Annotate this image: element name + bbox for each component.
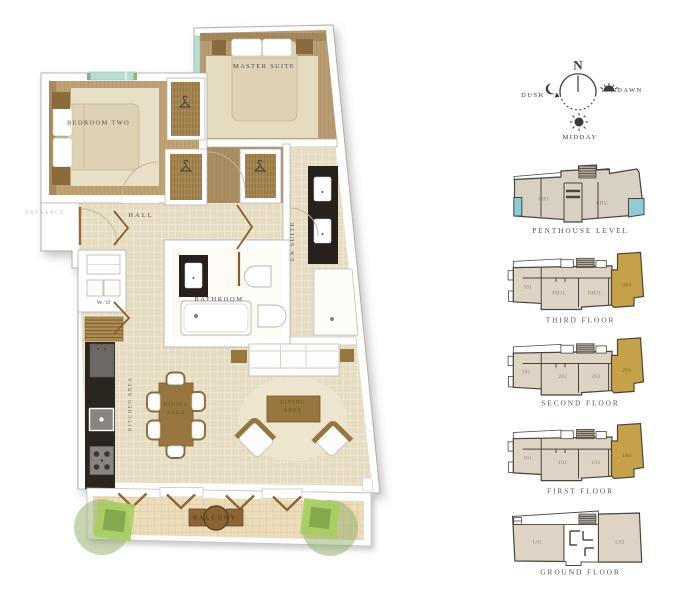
svg-text:BALCONY: BALCONY	[193, 515, 237, 522]
svg-text:GROUND FLOOR: GROUND FLOOR	[540, 568, 621, 577]
svg-text:L02: L02	[615, 541, 625, 546]
svg-text:LIVING: LIVING	[281, 400, 306, 406]
svg-text:304: 304	[623, 283, 632, 288]
svg-text:L01: L01	[533, 541, 543, 546]
svg-text:AREA: AREA	[284, 408, 303, 414]
svg-text:PH1: PH1	[538, 197, 550, 203]
svg-text:DUSK: DUSK	[521, 92, 545, 99]
svg-text:THIRD FLOOR: THIRD FLOOR	[546, 316, 616, 325]
svg-text:104: 104	[623, 454, 632, 459]
svg-text:AREA: AREA	[167, 410, 186, 416]
svg-text:201: 201	[522, 371, 531, 376]
svg-text:102: 102	[558, 461, 567, 466]
svg-text:MIDDAY: MIDDAY	[562, 134, 597, 141]
svg-text:MASTER SUITE: MASTER SUITE	[233, 63, 295, 70]
svg-text:DINING: DINING	[163, 402, 189, 408]
svg-text:204: 204	[622, 368, 631, 373]
svg-text:101: 101	[523, 456, 532, 461]
svg-text:PENTHOUSE LEVEL: PENTHOUSE LEVEL	[532, 226, 629, 235]
svg-text:HALL: HALL	[128, 212, 153, 219]
svg-text:KITCHEN AREA: KITCHEN AREA	[128, 377, 134, 432]
svg-text:301: 301	[523, 286, 532, 291]
svg-text:203: 203	[592, 375, 601, 380]
svg-text:PH1L: PH1L	[552, 291, 566, 296]
svg-text:N: N	[573, 58, 583, 73]
svg-text:BATHROOM: BATHROOM	[194, 296, 243, 303]
svg-text:202: 202	[558, 375, 567, 380]
svg-text:FIRST FLOOR: FIRST FLOOR	[547, 487, 614, 496]
svg-text:PH2: PH2	[596, 201, 608, 207]
svg-text:103: 103	[591, 461, 600, 466]
svg-text:W/D: W/D	[97, 300, 111, 306]
svg-text:SECOND FLOOR: SECOND FLOOR	[541, 399, 619, 408]
svg-text:PH2L: PH2L	[588, 291, 602, 296]
svg-text:DAWN: DAWN	[617, 87, 643, 94]
svg-text:BEDROOM TWO: BEDROOM TWO	[67, 120, 130, 127]
svg-text:ENTRANCE: ENTRANCE	[25, 211, 64, 216]
